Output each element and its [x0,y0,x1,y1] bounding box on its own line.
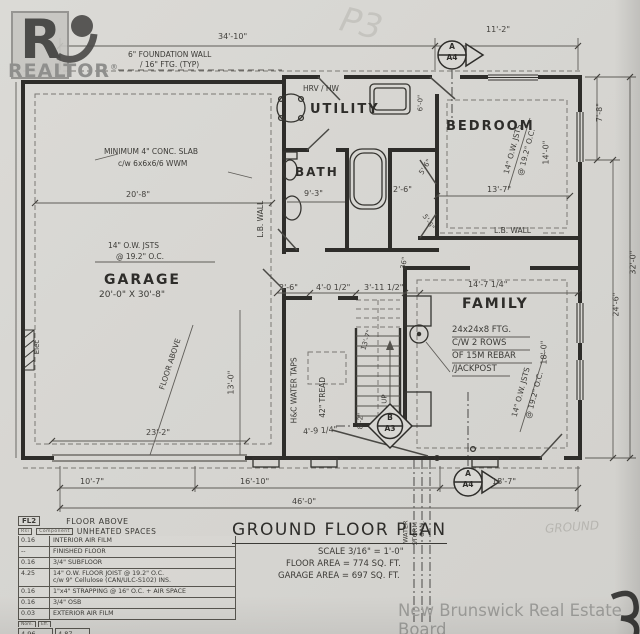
legend-rsi: 0.16 [19,598,50,608]
legend-rsi: 4.25 [19,569,50,587]
dim-7-8: 7'-8" [595,103,604,122]
dim-11-2: 11'-2" [486,25,510,34]
registered-symbol: ® [110,63,119,72]
plan-floor-area: FLOOR AREA = 774 SQ. FT. [286,560,401,570]
dim-13-0: 13'-0" [226,371,235,395]
legend-row: 0.163/4" OSB [18,598,236,609]
dim-16-10: 16'-10" [240,477,269,486]
legend-rsi: 0.03 [19,609,50,619]
dim-4-0-half: 4'-0 1/2" [316,283,350,292]
legend-subtitle: UNHEATED SPACES [77,527,157,536]
slab-note-line1: MINIMUM 4" CONC. SLAB [104,148,198,157]
legend-col-component: Component [36,528,73,535]
foundation-note-line1: 6" FOUNDATION WALL [128,51,211,60]
footing-note-1: 24x24x8 FTG. [452,326,511,336]
tread-label: 42" TREAD [319,377,328,418]
legend-rsi: -- [19,547,50,557]
legend-desc: 14" O.W. FLOOR JOIST @ 19.2" O.C.c/w 9" … [50,569,174,587]
dim-8-2: 8'-2" [356,413,364,430]
dim-18-7: 18'-7" [492,477,516,486]
footing-note-2: C/W 2 ROWS [452,339,506,349]
dim-32-0: 32'-0" [628,251,637,275]
lb-wall-bedroom: L.B. WALL [494,227,531,236]
room-bedroom: BEDROOM [446,120,535,135]
footing-note-4: /JACKPOST [452,365,497,375]
legend-title: FLOOR ABOVE [66,517,128,526]
section-marker-a-top-sheet: A4 [438,53,466,62]
dim-13-7-bedroom: 13'-7" [487,185,511,194]
footing-note-3: OF 15M REBAR [452,352,516,362]
section-marker-a-bottom-letter: A [454,469,482,478]
legend-desc: 3/4" SUBFLOOR [50,558,105,568]
hc-water-taps: H&C WATER TAPS [291,357,300,423]
dim-23-2: 23'-2" [146,428,170,437]
dim-24-6: 24'-6" [611,293,620,317]
legend-row: --FINISHED FLOOR [18,547,236,558]
room-family: FAMILY [462,296,529,312]
legend-rsi: 0.16 [19,558,50,568]
dim-2-6-hall: 2'-6" [279,283,298,292]
room-garage-size: 20'-0" X 30'-8" [99,290,165,300]
garage-joist-note-1: 14" O.W. JSTS [108,242,159,251]
legend-row: 0.161"x4" STRAPPING @ 16" O.C. + AIR SPA… [18,587,236,598]
legend-total-nom-label: Nom. [18,621,36,627]
legend-tag: FL2 [18,516,40,526]
dim-2-6-closet: 2'-6" [393,185,412,194]
legend-row: 0.163/4" SUBFLOOR [18,558,236,569]
section-marker-a-top-letter: A [438,42,466,51]
foundation-note-line2: / 16" FTG. (TYP) [140,61,199,70]
legend-row: 4.2514" O.W. FLOOR JOIST @ 19.2" O.C.c/w… [18,569,236,588]
board-watermark: New Brunswick Real Estate Board [398,601,640,634]
legend-row: 0.16INTERIOR AIR FILM [18,536,236,547]
dim-10-7: 10'-7" [80,477,104,486]
up-label: UP [381,394,389,403]
legend-desc: 1"x4" STRAPPING @ 16" O.C. + AIR SPACE [50,587,189,597]
legend-total-nom: 4.96 [18,628,53,634]
legend-desc: EXTERIOR AIR FILM [50,609,117,619]
dim-34-10: 34'-10" [218,32,247,41]
section-marker-a-bottom-sheet: A4 [454,480,482,489]
room-bath: BATH [295,166,339,180]
slab-note-line2: c/w 6x6x6/6 WWM [118,160,187,169]
room-utility: UTILITY [310,103,380,118]
plan-title: GROUND FLOOR PLAN [232,521,447,544]
dim-6-0-hall: 6'-0" [416,95,424,112]
legend-desc: FINISHED FLOOR [50,547,109,557]
garage-joist-note-2: @ 19.2" O.C. [116,253,164,262]
dim-46-0: 46'-0" [292,497,316,506]
legend-col-rsi: Rsi [18,528,32,535]
legend-rsi: 0.16 [19,536,50,546]
dim-20-8: 20'-8" [126,190,150,199]
legend-rsi: 0.16 [19,587,50,597]
plan-garage-area: GARAGE AREA = 697 SQ. FT. [278,572,400,582]
hrv-label: HRV / HW [303,85,339,94]
room-garage: GARAGE [104,272,181,288]
legend-desc: 3/4" OSB [50,598,84,608]
dim-3-11-half: 3'-11 1/2" [364,283,403,292]
elec-label: Elec [33,340,41,355]
realtor-logo-text: REALTOR® [8,60,119,82]
dim-14-7-quarter: 14'-7 1/4" [468,280,507,289]
section-marker-b-sheet: A3 [376,424,404,433]
plan-scale: SCALE 3/16" = 1'-0" [318,548,404,558]
legend-total-eff-label: Eff. [38,621,51,627]
legend-row: 0.03EXTERIOR AIR FILM [18,609,236,620]
legend-total-eff: 4.87 [55,628,90,634]
legend-desc-line2: c/w 9" Cellulose (CAN/ULC-S102) INS. [53,577,171,584]
dim-18-0: 18'-0" [539,341,548,365]
section-marker-b-letter: B [376,413,404,422]
lb-wall-garage: L.B. WALL [257,201,266,238]
realtor-word: REALTOR [8,60,110,82]
dim-9-3: 9'-3" [304,189,323,198]
dim-14-0: 14'-0" [541,141,550,165]
legend-desc: INTERIOR AIR FILM [50,536,115,546]
floor-assembly-legend: FL2 FLOOR ABOVE Rsi Component UNHEATED S… [18,516,236,634]
floor-plan-scan: R REALTOR® P3 GROUND New Brunswick Real … [0,0,640,634]
legend-desc-line1: 14" O.W. FLOOR JOIST @ 19.2" O.C. [53,570,164,577]
